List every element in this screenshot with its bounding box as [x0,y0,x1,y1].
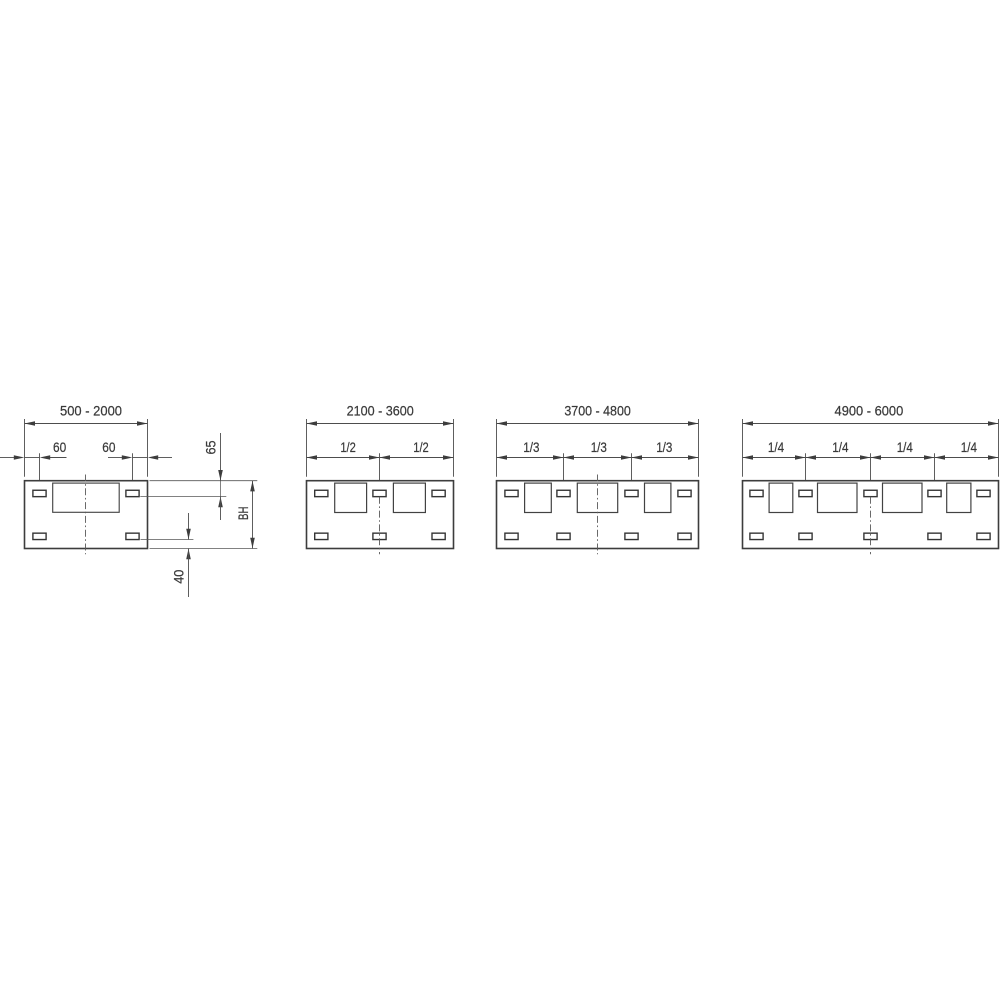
svg-text:1/4: 1/4 [832,439,848,455]
svg-text:1/4: 1/4 [961,439,977,455]
svg-text:1/2: 1/2 [340,439,356,455]
svg-text:1/3: 1/3 [523,439,539,455]
svg-text:3700 - 4800: 3700 - 4800 [564,403,631,419]
svg-text:40: 40 [170,569,186,583]
svg-text:4900 - 6000: 4900 - 6000 [835,403,904,419]
svg-text:1/3: 1/3 [591,439,607,455]
svg-text:1/4: 1/4 [897,439,913,455]
svg-text:60: 60 [53,439,66,455]
svg-text:500 - 2000: 500 - 2000 [60,403,122,419]
svg-text:1/3: 1/3 [656,439,672,455]
svg-text:1/2: 1/2 [413,439,429,455]
svg-text:BH: BH [235,507,251,520]
svg-text:1/4: 1/4 [768,439,784,455]
svg-text:60: 60 [102,439,115,455]
svg-text:65: 65 [202,440,218,454]
svg-text:2100 - 3600: 2100 - 3600 [347,403,414,419]
